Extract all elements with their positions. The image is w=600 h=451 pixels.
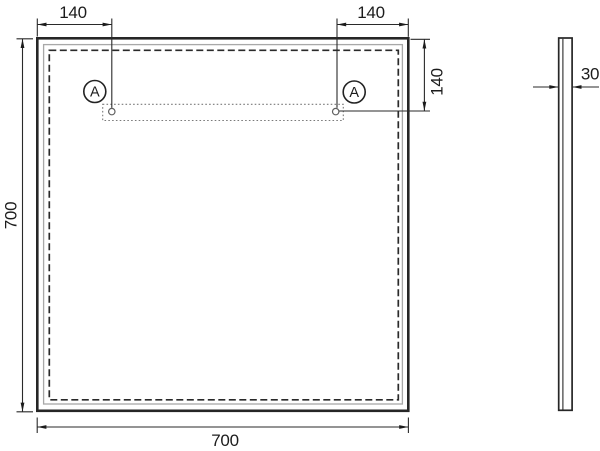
dimension-label: 140 <box>59 3 86 22</box>
dimension-label: 140 <box>428 68 447 95</box>
dimension-thickness: 30 <box>533 65 599 89</box>
arrowhead <box>399 425 408 429</box>
bracket-dotted-outline <box>103 104 344 120</box>
side-view: 30 <box>533 38 599 410</box>
arrowhead <box>37 23 46 27</box>
dimension-drawing: A A 140 140 <box>0 0 600 451</box>
arrowhead <box>103 23 112 27</box>
arrowhead <box>37 425 46 429</box>
arrowhead <box>399 23 408 27</box>
mounting-hole-left <box>109 108 115 114</box>
mounting-hole-right <box>333 108 339 114</box>
dimension-label: 700 <box>211 431 238 450</box>
mounting-bracket <box>103 104 344 120</box>
dimension-label: 140 <box>357 3 384 22</box>
marker-a-right: A <box>343 81 365 103</box>
hidden-edge-dashed-frame <box>49 50 398 400</box>
arrowhead <box>549 85 558 89</box>
arrowhead <box>572 85 581 89</box>
arrowhead <box>423 102 427 111</box>
side-profile-outline <box>559 38 572 410</box>
marker-a-left-label: A <box>90 85 100 101</box>
arrowhead <box>21 39 25 48</box>
arrowhead <box>337 23 346 27</box>
arrowhead <box>423 39 427 48</box>
front-view: A A 140 140 <box>2 3 447 450</box>
marker-a-left: A <box>84 81 106 103</box>
dimension-height: 700 <box>2 39 34 412</box>
dimension-label: 700 <box>2 202 21 229</box>
dimension-width: 700 <box>37 418 408 451</box>
dimension-label: 30 <box>581 65 599 84</box>
arrowhead <box>21 403 25 412</box>
technical-drawing-page: A A 140 140 <box>0 0 600 451</box>
marker-a-right-label: A <box>349 85 359 101</box>
